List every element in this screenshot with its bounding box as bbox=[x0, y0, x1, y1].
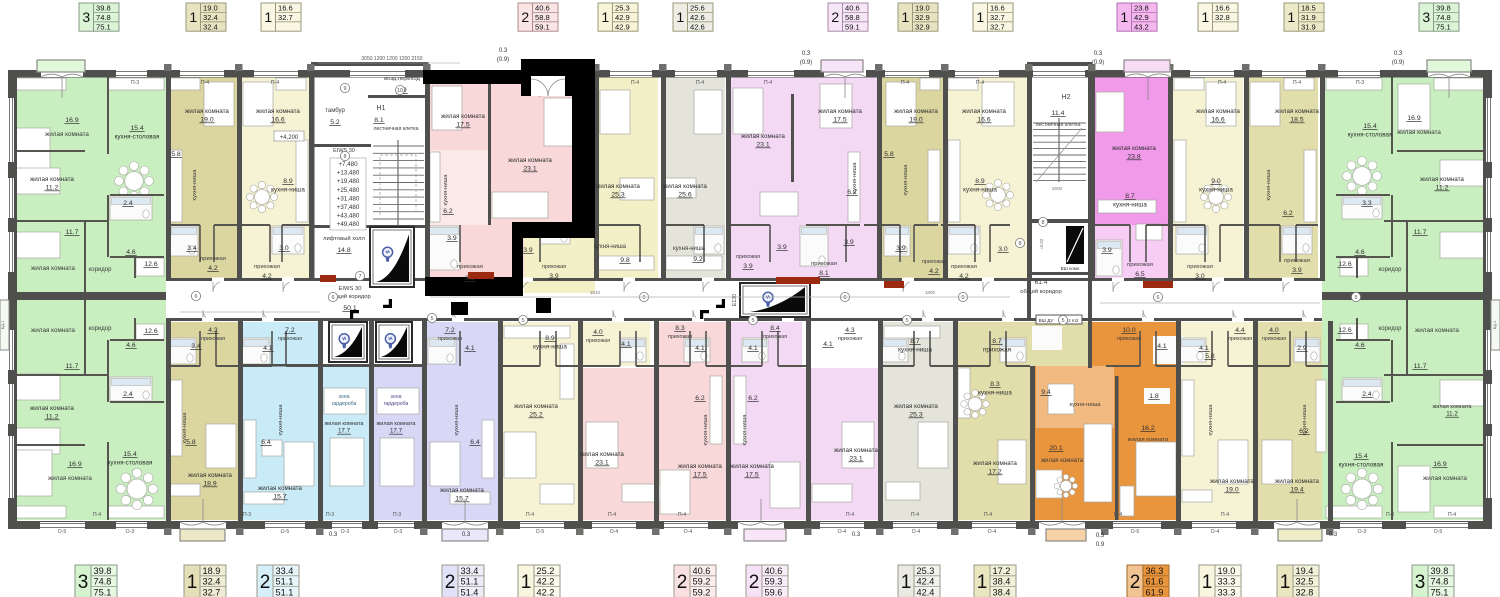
svg-text:6.2: 6.2 bbox=[748, 395, 758, 402]
svg-text:Н2: Н2 bbox=[1062, 94, 1071, 101]
svg-text:4.1: 4.1 bbox=[823, 341, 833, 348]
svg-text:кухня-ниша: кухня-ниша bbox=[594, 244, 627, 250]
svg-text:Е130: Е130 bbox=[732, 294, 738, 306]
svg-text:П-3: П-3 bbox=[1356, 80, 1364, 86]
svg-text:0.9: 0.9 bbox=[1096, 542, 1105, 548]
svg-text:1800: 1800 bbox=[925, 290, 936, 295]
svg-text:3050 1200 1200 1200: 3050 1200 1200 1200 2150 bbox=[361, 56, 422, 62]
svg-text:17.5: 17.5 bbox=[833, 116, 846, 123]
svg-text:7.2: 7.2 bbox=[445, 327, 455, 334]
svg-text:гардероба: гардероба bbox=[384, 401, 409, 407]
svg-text:42.9: 42.9 bbox=[615, 22, 630, 31]
svg-text:74.8: 74.8 bbox=[96, 13, 111, 22]
svg-text:8: 8 bbox=[1041, 220, 1044, 226]
svg-text:3.9: 3.9 bbox=[523, 247, 533, 254]
svg-text:2600: 2600 bbox=[1052, 186, 1063, 191]
svg-text:32.7: 32.7 bbox=[990, 13, 1005, 22]
svg-text:16.2: 16.2 bbox=[1141, 425, 1154, 432]
svg-text:8.1: 8.1 bbox=[819, 270, 829, 277]
svg-text:23.8: 23.8 bbox=[1127, 153, 1140, 160]
svg-text:3: 3 bbox=[1415, 572, 1426, 593]
svg-text:8.7: 8.7 bbox=[910, 338, 920, 345]
svg-text:2: 2 bbox=[677, 572, 688, 593]
svg-text:32.4: 32.4 bbox=[203, 577, 221, 587]
svg-text:зона: зона bbox=[391, 394, 402, 400]
svg-text:14.8: 14.8 bbox=[337, 247, 350, 254]
svg-text:жилая комната: жилая комната bbox=[580, 451, 624, 458]
svg-text:жилая комната: жилая комната bbox=[441, 113, 485, 120]
svg-text:+19,480: +19,480 bbox=[337, 178, 360, 185]
svg-text:11.2: 11.2 bbox=[46, 413, 59, 420]
svg-text:EIWS 30: EIWS 30 bbox=[339, 286, 362, 292]
svg-text:40.6: 40.6 bbox=[693, 566, 711, 576]
svg-text:59.2: 59.2 bbox=[693, 587, 711, 597]
svg-text:0.3: 0.3 bbox=[1094, 51, 1103, 57]
svg-text:6: 6 bbox=[194, 294, 197, 300]
svg-text:3.9: 3.9 bbox=[447, 235, 457, 242]
svg-text:П-4: П-4 bbox=[846, 512, 854, 518]
svg-text:П-4: П-4 bbox=[984, 512, 992, 518]
svg-text:8.9: 8.9 bbox=[975, 178, 985, 185]
svg-text:П-4: П-4 bbox=[1448, 512, 1456, 518]
svg-text:жилая комната: жилая комната bbox=[741, 133, 785, 140]
svg-text:+7,480: +7,480 bbox=[338, 161, 358, 168]
svg-text:1: 1 bbox=[521, 572, 532, 593]
svg-text:жилая комната: жилая комната bbox=[30, 176, 74, 183]
svg-text:3.9: 3.9 bbox=[1292, 267, 1302, 274]
svg-text:36.3: 36.3 bbox=[1146, 566, 1164, 576]
svg-text:16.6: 16.6 bbox=[990, 4, 1005, 13]
svg-text:16.6: 16.6 bbox=[1215, 4, 1230, 13]
svg-text:0.3: 0.3 bbox=[1394, 51, 1403, 57]
svg-text:74.8: 74.8 bbox=[94, 577, 112, 587]
svg-text:БД-1: БД-1 bbox=[1, 321, 5, 329]
svg-text:6: 6 bbox=[331, 295, 334, 301]
svg-text:31.9: 31.9 bbox=[1301, 22, 1316, 31]
svg-text:коридор: коридор bbox=[89, 267, 113, 273]
svg-text:2.9: 2.9 bbox=[1297, 345, 1307, 352]
svg-text:кухня-ниша: кухня-ниша bbox=[903, 164, 909, 196]
svg-text:19.4: 19.4 bbox=[1290, 486, 1303, 493]
svg-text:+31,480: +31,480 bbox=[337, 195, 360, 202]
svg-text:кухня-ниша: кухня-ниша bbox=[963, 186, 997, 193]
svg-text:жилая комната: жилая комната bbox=[31, 265, 75, 272]
svg-text:жилая комната: жилая комната bbox=[514, 403, 558, 410]
svg-text:+4,200: +4,200 bbox=[280, 135, 299, 141]
svg-text:гардероба: гардероба bbox=[332, 401, 357, 407]
svg-text:0.3: 0.3 bbox=[499, 48, 508, 54]
svg-text:кухня-ниша: кухня-ниша bbox=[278, 404, 284, 436]
svg-text:19.0: 19.0 bbox=[915, 4, 930, 13]
svg-text:зона: зона bbox=[339, 394, 350, 400]
svg-text:О-4: О-4 bbox=[1211, 529, 1220, 535]
svg-text:40.6: 40.6 bbox=[845, 4, 860, 13]
svg-text:кухня-ниша: кухня-ниша bbox=[673, 246, 706, 252]
svg-text:прихожая: прихожая bbox=[1284, 258, 1310, 264]
svg-text:25.2: 25.2 bbox=[537, 566, 555, 576]
svg-text:жилая комната: жилая комната bbox=[325, 421, 365, 427]
svg-text:2: 2 bbox=[831, 9, 839, 25]
svg-text:жилая комната: жилая комната bbox=[730, 463, 774, 470]
svg-text:23.1: 23.1 bbox=[849, 455, 862, 462]
svg-text:жилая комната: жилая комната bbox=[508, 157, 552, 164]
svg-text:75.1: 75.1 bbox=[1436, 22, 1451, 31]
svg-text:жилая комната: жилая комната bbox=[1112, 145, 1156, 152]
svg-text:16.9: 16.9 bbox=[68, 461, 81, 468]
svg-text:39.8: 39.8 bbox=[94, 566, 112, 576]
svg-text:жилая комната: жилая комната bbox=[256, 108, 300, 115]
svg-text:4.0: 4.0 bbox=[593, 329, 603, 336]
svg-text:прихожая: прихожая bbox=[438, 336, 462, 342]
svg-text:16.6: 16.6 bbox=[278, 4, 293, 13]
svg-text:возд.переход: возд.переход bbox=[384, 76, 420, 82]
svg-text:кухня-ниша: кухня-ниша bbox=[1113, 201, 1147, 208]
svg-text:лифтовый холл: лифтовый холл bbox=[323, 235, 365, 242]
svg-text:4.3: 4.3 bbox=[208, 327, 218, 334]
svg-text:прихожая: прихожая bbox=[838, 336, 862, 342]
svg-text:жилая комната: жилая комната bbox=[1415, 327, 1459, 334]
svg-text:11.7: 11.7 bbox=[66, 229, 79, 236]
svg-text:тамбур: тамбур bbox=[325, 108, 345, 114]
svg-text:О-3: О-3 bbox=[126, 529, 135, 535]
svg-text:1: 1 bbox=[901, 9, 909, 25]
svg-text:4.2: 4.2 bbox=[929, 268, 939, 275]
svg-text:39.8: 39.8 bbox=[1436, 4, 1451, 13]
svg-text:1: 1 bbox=[976, 9, 984, 25]
svg-text:+13,480: +13,480 bbox=[337, 170, 360, 177]
svg-text:74.8: 74.8 bbox=[1431, 577, 1449, 587]
svg-text:4.6: 4.6 bbox=[1355, 342, 1365, 349]
svg-text:11.7: 11.7 bbox=[1414, 229, 1427, 236]
svg-text:П-4: П-4 bbox=[1221, 512, 1229, 518]
svg-text:жилая комната: жилая комната bbox=[663, 183, 707, 190]
svg-text:58.8: 58.8 bbox=[845, 13, 860, 22]
svg-text:О-4: О-4 bbox=[610, 529, 619, 535]
svg-text:6: 6 bbox=[1156, 295, 1159, 301]
svg-text:61.9: 61.9 bbox=[1146, 587, 1164, 597]
svg-text:15.4: 15.4 bbox=[1354, 453, 1367, 460]
svg-text:кухня-ниша: кухня-ниша bbox=[443, 174, 449, 206]
svg-text:2: 2 bbox=[521, 9, 529, 25]
svg-text:23.1: 23.1 bbox=[595, 459, 608, 466]
svg-text:23.8: 23.8 bbox=[1134, 4, 1149, 13]
svg-text:лестничная клетка: лестничная клетка bbox=[1035, 122, 1080, 128]
svg-text:1: 1 bbox=[601, 9, 609, 25]
svg-text:кухня-столовая: кухня-столовая bbox=[1348, 131, 1393, 138]
svg-text:25.3: 25.3 bbox=[615, 4, 630, 13]
svg-text:прихожая: прихожая bbox=[763, 334, 787, 340]
svg-text:8.7: 8.7 bbox=[992, 338, 1002, 345]
svg-text:жилая комната: жилая комната bbox=[678, 463, 722, 470]
svg-text:11.2: 11.2 bbox=[1436, 184, 1449, 191]
svg-text:О-4: О-4 bbox=[838, 529, 847, 535]
svg-text:4.1: 4.1 bbox=[748, 345, 758, 352]
svg-text:5.8: 5.8 bbox=[171, 151, 181, 158]
svg-text:3.0: 3.0 bbox=[279, 245, 289, 252]
svg-text:51.1: 51.1 bbox=[276, 587, 294, 597]
svg-text:0.3: 0.3 bbox=[802, 51, 811, 57]
svg-text:Н1: Н1 bbox=[377, 105, 386, 112]
svg-text:19.0: 19.0 bbox=[909, 116, 922, 123]
svg-text:33.4: 33.4 bbox=[461, 566, 479, 576]
svg-text:51.1: 51.1 bbox=[276, 577, 294, 587]
svg-text:5: 5 bbox=[430, 316, 433, 322]
svg-text:кухня-ниша: кухня-ниша bbox=[271, 186, 305, 193]
svg-text:кухня-ниша: кухня-ниша bbox=[1199, 186, 1233, 193]
svg-text:П-3: П-3 bbox=[1386, 512, 1394, 518]
svg-text:6.2: 6.2 bbox=[847, 189, 857, 196]
svg-text:жилая комната: жилая комната bbox=[1275, 108, 1319, 115]
svg-text:32.7: 32.7 bbox=[203, 587, 221, 597]
svg-text:15.7: 15.7 bbox=[273, 493, 286, 500]
svg-text:жилая комната: жилая комната bbox=[1041, 458, 1083, 464]
svg-text:9.0: 9.0 bbox=[1211, 178, 1221, 185]
svg-text:19.0: 19.0 bbox=[203, 4, 218, 13]
svg-text:32.9: 32.9 bbox=[915, 22, 930, 31]
svg-text:1.8: 1.8 bbox=[1149, 393, 1159, 400]
svg-text:42.9: 42.9 bbox=[615, 13, 630, 22]
svg-text:42.2: 42.2 bbox=[537, 577, 555, 587]
svg-text:4.2: 4.2 bbox=[959, 273, 969, 280]
svg-text:жилая комната: жилая комната bbox=[894, 108, 938, 115]
svg-text:П-4: П-4 bbox=[1293, 80, 1301, 86]
svg-text:жилая комната: жилая комната bbox=[1423, 475, 1467, 482]
svg-text:4.1: 4.1 bbox=[465, 345, 475, 352]
svg-text:кухня-столовая: кухня-столовая bbox=[1339, 461, 1384, 468]
svg-text:О-3: О-3 bbox=[341, 529, 350, 535]
svg-text:6.4: 6.4 bbox=[470, 439, 480, 446]
svg-text:прихожая: прихожая bbox=[201, 336, 225, 342]
svg-text:О-5: О-5 bbox=[1434, 529, 1443, 535]
svg-text:3.9: 3.9 bbox=[896, 245, 906, 252]
svg-text:1: 1 bbox=[187, 572, 198, 593]
svg-text:кухня-ниша: кухня-ниша bbox=[1208, 404, 1214, 436]
svg-text:74.8: 74.8 bbox=[1436, 13, 1451, 22]
svg-text:П-4: П-4 bbox=[93, 512, 101, 518]
svg-text:19.0: 19.0 bbox=[1218, 566, 1236, 576]
svg-text:16.6: 16.6 bbox=[1211, 116, 1224, 123]
svg-text:прихожая: прихожая bbox=[1117, 336, 1141, 342]
svg-text:кухня-ниша: кухня-ниша bbox=[703, 414, 709, 446]
svg-text:О-4: О-4 bbox=[684, 529, 693, 535]
svg-text:51.1: 51.1 bbox=[461, 577, 479, 587]
svg-text:8.1: 8.1 bbox=[374, 117, 384, 124]
svg-text:11.4: 11.4 bbox=[1052, 110, 1065, 117]
svg-text:прихожая: прихожая bbox=[542, 264, 566, 270]
svg-text:4.6: 4.6 bbox=[126, 342, 136, 349]
svg-text:8.3: 8.3 bbox=[675, 325, 685, 332]
svg-text:кухня-ниша: кухня-ниша bbox=[1070, 402, 1102, 408]
svg-text:5: 5 bbox=[642, 295, 645, 301]
svg-text:8.9: 8.9 bbox=[545, 335, 555, 342]
svg-text:3.0: 3.0 bbox=[998, 246, 1008, 253]
svg-text:кухня-ниша: кухня-ниша bbox=[454, 404, 460, 436]
svg-text:1: 1 bbox=[676, 9, 684, 25]
svg-text:58.8: 58.8 bbox=[535, 13, 550, 22]
svg-text:4.1: 4.1 bbox=[1157, 343, 1167, 350]
svg-text:59.2: 59.2 bbox=[693, 577, 711, 587]
svg-text:прихожая: прихожая bbox=[951, 264, 977, 270]
svg-text:кухня-ниша: кухня-ниша bbox=[742, 414, 748, 446]
svg-text:О-5: О-5 bbox=[58, 529, 67, 535]
svg-text:прихожая: прихожая bbox=[278, 336, 302, 342]
svg-text:П-3: П-3 bbox=[131, 80, 139, 86]
svg-text:4.3: 4.3 bbox=[845, 327, 855, 334]
svg-text:прихожая: прихожая bbox=[200, 256, 226, 262]
svg-text:17.2: 17.2 bbox=[988, 468, 1001, 475]
svg-text:прихожая: прихожая bbox=[1228, 336, 1252, 342]
svg-text:П-4: П-4 bbox=[631, 80, 639, 86]
svg-text:жилая комната: жилая комната bbox=[1210, 478, 1254, 485]
svg-text:17.5: 17.5 bbox=[745, 471, 758, 478]
svg-text:17.7: 17.7 bbox=[338, 428, 351, 435]
svg-text:кухня-ниша: кухня-ниша bbox=[182, 412, 188, 444]
svg-text:16.9: 16.9 bbox=[65, 117, 78, 124]
svg-text:0.3: 0.3 bbox=[852, 532, 861, 538]
svg-text:12.6: 12.6 bbox=[1338, 261, 1351, 268]
svg-text:6.5: 6.5 bbox=[1135, 271, 1145, 278]
svg-text:6: 6 bbox=[843, 295, 846, 301]
svg-text:42.9: 42.9 bbox=[1134, 13, 1149, 22]
svg-text:42.6: 42.6 bbox=[690, 13, 705, 22]
svg-text:5: 5 bbox=[1061, 318, 1064, 324]
svg-text:9.2: 9.2 bbox=[693, 256, 703, 263]
svg-text:кухня-столовая: кухня-столовая bbox=[115, 133, 160, 140]
svg-text:жилая комната: жилая комната bbox=[185, 108, 229, 115]
svg-text:3: 3 bbox=[78, 572, 89, 593]
svg-text:8.7: 8.7 bbox=[1125, 193, 1135, 200]
svg-text:1: 1 bbox=[1202, 572, 1213, 593]
svg-text:25.6: 25.6 bbox=[678, 191, 691, 198]
svg-text:33.3: 33.3 bbox=[1218, 587, 1236, 597]
svg-text:0.3: 0.3 bbox=[1096, 533, 1105, 539]
svg-text:П-4: П-4 bbox=[526, 512, 534, 518]
svg-text:О-4: О-4 bbox=[912, 529, 921, 535]
svg-text:2: 2 bbox=[445, 572, 456, 593]
svg-text:жилая комната: жилая комната bbox=[962, 108, 1006, 115]
svg-text:16.9: 16.9 bbox=[1433, 461, 1446, 468]
svg-text:ВШ ДУ: ВШ ДУ bbox=[1039, 318, 1054, 323]
svg-text:4.0: 4.0 bbox=[1269, 327, 1279, 334]
svg-text:3.4: 3.4 bbox=[187, 245, 197, 252]
svg-text:5: 5 bbox=[751, 318, 754, 324]
svg-text:9.4: 9.4 bbox=[1041, 389, 1051, 396]
svg-text:3.9: 3.9 bbox=[743, 263, 753, 270]
svg-text:прихожая: прихожая bbox=[586, 338, 610, 344]
svg-text:прихожая: прихожая bbox=[811, 261, 837, 267]
svg-text:+49,480: +49,480 bbox=[337, 221, 360, 228]
svg-text:4.2: 4.2 bbox=[262, 273, 272, 280]
svg-text:18.9: 18.9 bbox=[203, 566, 221, 576]
svg-text:О-5: О-5 bbox=[536, 529, 545, 535]
svg-text:59.1: 59.1 bbox=[535, 22, 550, 31]
svg-text:(0.9): (0.9) bbox=[800, 60, 812, 66]
svg-text:жилая комната: жилая комната bbox=[48, 475, 92, 482]
svg-text:75.1: 75.1 bbox=[96, 22, 111, 31]
svg-text:18.5: 18.5 bbox=[1290, 116, 1303, 123]
svg-text:6.4: 6.4 bbox=[261, 439, 271, 446]
svg-text:1: 1 bbox=[1201, 9, 1209, 25]
svg-text:25.3: 25.3 bbox=[917, 566, 935, 576]
svg-text:(0.9): (0.9) bbox=[1392, 60, 1404, 66]
svg-text:прихожая: прихожая bbox=[1262, 336, 1286, 342]
svg-text:38.4: 38.4 bbox=[993, 577, 1011, 587]
svg-text:8.9: 8.9 bbox=[283, 178, 293, 185]
svg-text:П-4: П-4 bbox=[271, 80, 279, 86]
svg-text:П-4: П-4 bbox=[678, 512, 686, 518]
svg-text:2.4: 2.4 bbox=[123, 200, 133, 207]
svg-text:прихожая: прихожая bbox=[457, 264, 483, 270]
svg-text:59.1: 59.1 bbox=[845, 22, 860, 31]
svg-text:16.6: 16.6 bbox=[271, 116, 284, 123]
svg-text:8: 8 bbox=[1018, 241, 1021, 247]
svg-text:39.8: 39.8 bbox=[96, 4, 111, 13]
svg-text:5: 5 bbox=[521, 318, 524, 324]
svg-text:12.6: 12.6 bbox=[144, 328, 157, 335]
svg-text:18.5: 18.5 bbox=[1301, 4, 1316, 13]
svg-text:3.0: 3.0 bbox=[1195, 273, 1205, 280]
svg-text:кухня-ниша: кухня-ниша bbox=[898, 346, 932, 353]
svg-text:19.4: 19.4 bbox=[1296, 566, 1314, 576]
svg-text:38.4: 38.4 bbox=[993, 587, 1011, 597]
svg-text:9.8: 9.8 bbox=[620, 257, 630, 264]
svg-text:0.3: 0.3 bbox=[329, 532, 338, 538]
svg-text:1: 1 bbox=[1120, 9, 1128, 25]
svg-text:3.9: 3.9 bbox=[777, 244, 787, 251]
svg-text:2.4: 2.4 bbox=[1362, 391, 1372, 398]
svg-text:2: 2 bbox=[749, 572, 760, 593]
svg-text:П-4: П-4 bbox=[201, 80, 209, 86]
svg-text:жилая комната: жилая комната bbox=[258, 485, 302, 492]
svg-text:11.7: 11.7 bbox=[66, 363, 79, 370]
svg-text:жилая комната: жилая комната bbox=[31, 327, 75, 334]
svg-text:59.6: 59.6 bbox=[765, 587, 783, 597]
svg-text:жилая комната: жилая комната bbox=[973, 460, 1017, 467]
svg-text:19.0: 19.0 bbox=[200, 116, 213, 123]
svg-text:кухня-ниша: кухня-ниша bbox=[978, 389, 1012, 396]
svg-text:11.7: 11.7 bbox=[1414, 363, 1427, 370]
svg-text:5.8: 5.8 bbox=[884, 151, 894, 158]
svg-text:О-3: О-3 bbox=[1358, 529, 1367, 535]
svg-text:10.0: 10.0 bbox=[1122, 327, 1135, 334]
svg-text:59.3: 59.3 bbox=[765, 577, 783, 587]
svg-text:О-5: О-5 bbox=[1131, 529, 1140, 535]
svg-text:жилая комната: жилая комната bbox=[188, 472, 232, 479]
svg-text:61.4: 61.4 bbox=[1035, 279, 1048, 286]
svg-text:40.6: 40.6 bbox=[765, 566, 783, 576]
svg-text:19.0: 19.0 bbox=[1225, 486, 1238, 493]
svg-text:П-4: П-4 bbox=[1218, 80, 1226, 86]
svg-text:1: 1 bbox=[1287, 9, 1295, 25]
svg-text:ВШ комн: ВШ комн bbox=[1061, 266, 1080, 271]
svg-text:+43,480: +43,480 bbox=[337, 213, 360, 220]
svg-text:32.4: 32.4 bbox=[203, 22, 218, 31]
svg-text:П-3: П-3 bbox=[393, 512, 401, 518]
svg-text:П-4: П-4 bbox=[764, 80, 772, 86]
svg-text:42.2: 42.2 bbox=[537, 587, 555, 597]
svg-text:5: 5 bbox=[961, 295, 964, 301]
svg-text:12.6: 12.6 bbox=[144, 261, 157, 268]
svg-text:жилая комната: жилая комната bbox=[1128, 437, 1169, 443]
svg-text:2: 2 bbox=[260, 572, 271, 593]
svg-text:8.4: 8.4 bbox=[770, 325, 780, 332]
svg-text:25.2: 25.2 bbox=[529, 411, 542, 418]
svg-text:4.2: 4.2 bbox=[208, 265, 218, 272]
svg-text:жилая комната: жилая комната bbox=[1433, 404, 1473, 410]
svg-text:5.8: 5.8 bbox=[1205, 353, 1215, 360]
svg-text:15.7: 15.7 bbox=[455, 495, 468, 502]
svg-text:(0.9): (0.9) bbox=[497, 57, 509, 63]
